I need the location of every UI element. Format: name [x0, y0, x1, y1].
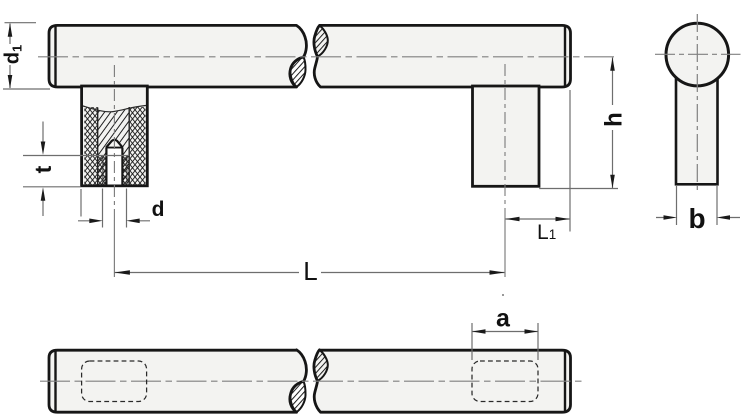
svg-text:L1: L1	[537, 221, 556, 244]
svg-text:b: b	[688, 203, 705, 234]
svg-text:L: L	[303, 256, 317, 286]
svg-text:h: h	[601, 112, 628, 127]
svg-text:a: a	[496, 305, 511, 333]
svg-text:d: d	[152, 198, 165, 221]
svg-text:t: t	[30, 165, 56, 173]
svg-text:d1: d1	[1, 45, 24, 64]
